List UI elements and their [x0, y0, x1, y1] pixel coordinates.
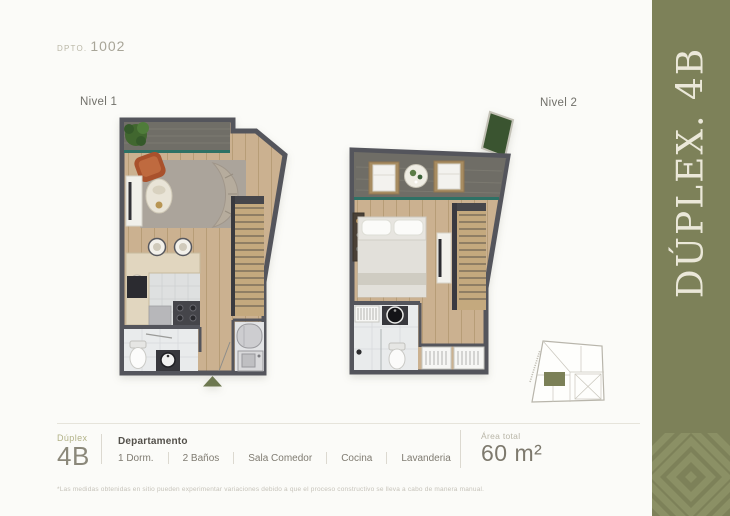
- bathroom: [122, 327, 200, 371]
- water-heater: [237, 324, 262, 348]
- feature-divider: [386, 452, 387, 464]
- stove: [173, 301, 200, 325]
- unit-summary: Dúplex 4B: [57, 433, 90, 470]
- washer: [238, 351, 263, 371]
- lounge-chair: [369, 162, 399, 194]
- band-title-wrap: DÚPLEX. 4B: [652, 0, 730, 345]
- level-2-floorplan: [345, 105, 520, 380]
- band-title: DÚPLEX. 4B: [671, 47, 712, 299]
- level-2-label: Nivel 2: [540, 97, 577, 109]
- unit-code: 4B: [57, 443, 90, 470]
- area-summary: Área total 60 m²: [481, 431, 542, 466]
- feature-divider: [326, 452, 327, 464]
- divider-line: [57, 423, 640, 424]
- level-1-label: Nivel 1: [80, 96, 117, 108]
- lounge-chair: [434, 161, 464, 192]
- feature-living-dining: Sala Comedor: [248, 453, 312, 464]
- shower-drain: [356, 349, 361, 354]
- toilet: [389, 343, 405, 369]
- feature-kitchen: Cocina: [341, 453, 372, 464]
- features-row: 1 Dorm. 2 Baños Sala Comedor Cocina Lava…: [118, 452, 465, 464]
- dpto-number: 1002: [90, 38, 125, 54]
- vertical-divider: [101, 434, 102, 464]
- feature-bedrooms: 1 Dorm.: [118, 453, 154, 464]
- stairs: [452, 203, 486, 310]
- category-label: Departamento: [118, 436, 465, 447]
- site-key-plan: [513, 328, 628, 428]
- department-summary: Departamento 1 Dorm. 2 Baños Sala Comedo…: [118, 436, 465, 464]
- dpto-label: DPTO.: [57, 44, 87, 53]
- bathroom: [352, 303, 420, 370]
- toilet: [130, 341, 146, 369]
- feature-divider: [233, 452, 234, 464]
- side-band: DÚPLEX. 4B: [652, 0, 730, 516]
- vertical-divider: [460, 430, 461, 468]
- coffee-table: [146, 179, 172, 213]
- tv-console: [437, 233, 451, 283]
- floorplan-sheet: DPTO. 1002 Nivel 1 Nivel 2: [0, 0, 730, 516]
- apartment-number: DPTO. 1002: [57, 38, 125, 54]
- fridge: [127, 276, 147, 298]
- sink-vanity: [382, 306, 408, 325]
- sink-vanity: [156, 350, 180, 371]
- entrance-marker-icon: [203, 376, 222, 387]
- terrace-table: [405, 165, 428, 188]
- area-value: 60 m²: [481, 441, 542, 466]
- level-1-floorplan: [116, 110, 291, 390]
- disclaimer-footnote: *Las medidas obtenidas en sitio pueden e…: [57, 486, 484, 493]
- feature-divider: [168, 452, 169, 464]
- bed: [358, 217, 426, 297]
- planter-box: [482, 112, 513, 157]
- stairs: [231, 196, 264, 316]
- unit-highlight: [544, 372, 565, 386]
- feature-laundry: Lavanderia: [401, 453, 450, 464]
- closet-hangers: [355, 306, 379, 322]
- feature-bathrooms: 2 Baños: [183, 453, 220, 464]
- tv-console: [126, 176, 142, 226]
- laundry: [233, 320, 264, 373]
- geometric-pattern-icon: [652, 433, 730, 516]
